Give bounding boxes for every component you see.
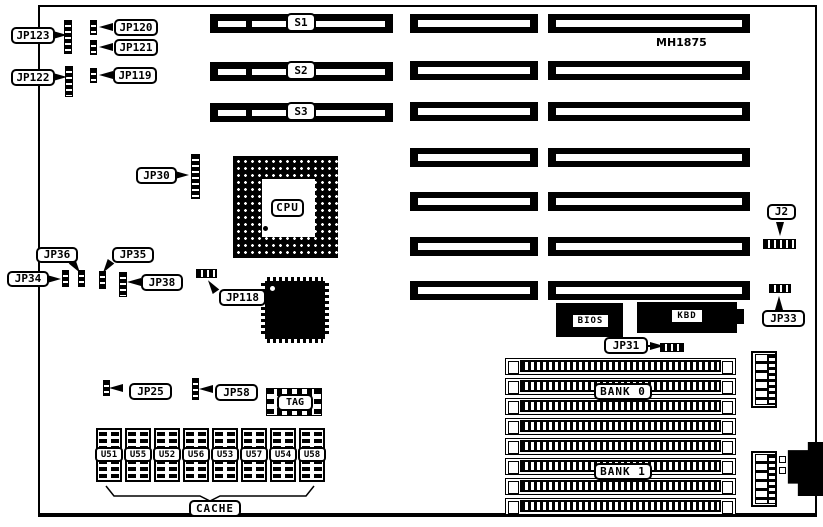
callout-jp25: JP25 bbox=[129, 383, 172, 400]
qfp-pin1-dot bbox=[270, 286, 275, 291]
cache-chip-u53: U53 bbox=[212, 428, 238, 482]
callout-pointer bbox=[99, 71, 113, 79]
cache-label: CACHE bbox=[189, 500, 241, 517]
jumper-jp33 bbox=[769, 284, 791, 293]
expansion-slot bbox=[410, 102, 538, 121]
expansion-slot bbox=[548, 14, 750, 33]
cache-chip-label: U51 bbox=[95, 447, 123, 462]
callout-jp121: JP121 bbox=[114, 39, 158, 56]
expansion-slot bbox=[548, 237, 750, 256]
slot-key bbox=[252, 110, 385, 116]
simm-socket bbox=[505, 358, 736, 375]
cache-chip-u57: U57 bbox=[241, 428, 267, 482]
cpu-pin1-dot bbox=[263, 226, 268, 231]
slot-s3-label: S3 bbox=[286, 102, 316, 121]
slot-key bbox=[252, 69, 385, 75]
cache-chip-u52: U52 bbox=[154, 428, 180, 482]
expansion-slot bbox=[410, 148, 538, 167]
expansion-slot bbox=[548, 192, 750, 211]
bank1-label: BANK 1 bbox=[594, 463, 652, 480]
cache-chip-u51: U51 bbox=[96, 428, 122, 482]
bios-label: BIOS bbox=[572, 314, 609, 328]
cache-chip-u58: U58 bbox=[299, 428, 325, 482]
cache-chip-label: U56 bbox=[182, 447, 210, 462]
callout-jp34: JP34 bbox=[7, 271, 49, 287]
slot-s1-label: S1 bbox=[286, 13, 316, 32]
slot-key bbox=[218, 69, 246, 75]
cpu-label: CPU bbox=[271, 199, 304, 217]
cache-chip-label: U55 bbox=[124, 447, 152, 462]
jumper-jp34 bbox=[62, 270, 69, 287]
qfp-leads bbox=[267, 339, 323, 343]
motherboard-diagram: MH1875 S1 S2 S3 CPU bbox=[0, 0, 823, 527]
callout-j2: J2 bbox=[767, 204, 796, 220]
callout-jp33: JP33 bbox=[762, 310, 805, 327]
slot-s2: S2 bbox=[210, 62, 393, 81]
kbd-chip-tab bbox=[736, 309, 744, 324]
jumper-jp121 bbox=[90, 40, 97, 55]
callout-pointer bbox=[175, 171, 189, 179]
cache-chip-label: U57 bbox=[240, 447, 268, 462]
simm-socket bbox=[505, 398, 736, 415]
jumper-jp38 bbox=[119, 272, 127, 297]
expansion-slot bbox=[410, 281, 538, 300]
callout-pointer bbox=[109, 384, 123, 392]
power-connector bbox=[751, 351, 777, 408]
cache-chip-label: U58 bbox=[298, 447, 326, 462]
jumper-jp30 bbox=[191, 154, 200, 199]
slot-key bbox=[252, 21, 385, 27]
callout-jp36: JP36 bbox=[36, 247, 78, 263]
cache-chip-u54: U54 bbox=[270, 428, 296, 482]
expansion-slot bbox=[410, 192, 538, 211]
callout-jp122: JP122 bbox=[11, 69, 55, 86]
callout-jp119: JP119 bbox=[113, 67, 157, 84]
callout-jp35: JP35 bbox=[112, 247, 154, 263]
callout-jp123: JP123 bbox=[11, 27, 55, 44]
callout-pointer bbox=[650, 342, 664, 350]
expansion-slot bbox=[548, 102, 750, 121]
expansion-slot bbox=[548, 61, 750, 80]
bank0-label: BANK 0 bbox=[594, 383, 652, 400]
expansion-slot bbox=[548, 148, 750, 167]
jumper-jp118 bbox=[196, 269, 217, 278]
expansion-slot bbox=[548, 281, 750, 300]
expansion-slot bbox=[410, 61, 538, 80]
slot-s3: S3 bbox=[210, 103, 393, 122]
simm-socket bbox=[505, 478, 736, 495]
power-connector bbox=[751, 451, 777, 507]
jumper-jp58 bbox=[192, 378, 199, 400]
kbd-label: KBD bbox=[671, 309, 703, 323]
cache-chip-label: U52 bbox=[153, 447, 181, 462]
qfp-chip bbox=[265, 281, 325, 339]
jumper-jp120 bbox=[90, 20, 97, 35]
jumper-jp119 bbox=[90, 68, 97, 83]
qfp-leads bbox=[325, 283, 329, 337]
model-text: MH1875 bbox=[656, 36, 707, 49]
callout-pointer bbox=[199, 385, 213, 393]
slot-s2-label: S2 bbox=[286, 61, 316, 80]
cache-chip-label: U54 bbox=[269, 447, 297, 462]
jumper-j2 bbox=[763, 239, 796, 249]
callout-jp38: JP38 bbox=[141, 274, 183, 291]
callout-pointer bbox=[53, 73, 67, 81]
callout-pointer bbox=[99, 23, 113, 31]
cache-chip-u55: U55 bbox=[125, 428, 151, 482]
callout-pointer bbox=[127, 278, 141, 286]
callout-pointer bbox=[53, 31, 67, 39]
jumper-jp122 bbox=[65, 66, 73, 97]
callout-pointer bbox=[776, 222, 784, 236]
callout-jp58: JP58 bbox=[215, 384, 258, 401]
tag-chip: TAG bbox=[266, 388, 322, 416]
slot-key bbox=[218, 21, 246, 27]
expansion-slot bbox=[410, 14, 538, 33]
callout-pointer bbox=[99, 43, 113, 51]
expansion-slot bbox=[410, 237, 538, 256]
slot-s1: S1 bbox=[210, 14, 393, 33]
callout-pointer bbox=[47, 275, 61, 283]
simm-socket bbox=[505, 498, 736, 515]
cache-chip-label: U53 bbox=[211, 447, 239, 462]
din-pad bbox=[779, 456, 786, 463]
simm-socket bbox=[505, 418, 736, 435]
callout-jp118: JP118 bbox=[219, 289, 266, 306]
tag-label: TAG bbox=[277, 394, 313, 411]
callout-jp31: JP31 bbox=[604, 337, 648, 354]
callout-pointer bbox=[775, 296, 783, 310]
callout-jp120: JP120 bbox=[114, 19, 158, 36]
din-pad bbox=[779, 467, 786, 474]
cache-chip-u56: U56 bbox=[183, 428, 209, 482]
simm-socket bbox=[505, 438, 736, 455]
slot-key bbox=[218, 110, 246, 116]
callout-jp30: JP30 bbox=[136, 167, 177, 184]
